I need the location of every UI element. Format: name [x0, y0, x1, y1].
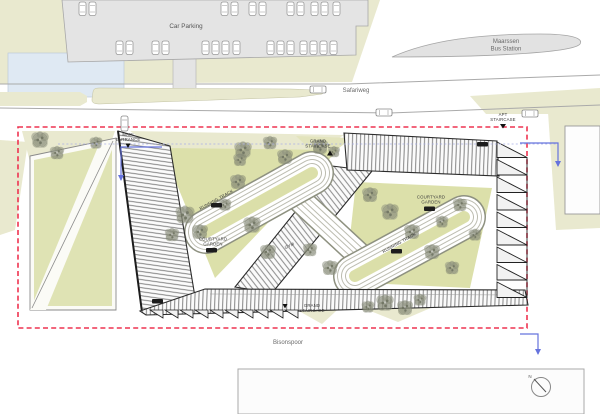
bus-icon — [376, 109, 392, 116]
street-safariweg: Safariweg — [343, 88, 370, 94]
courtyard-right-label-2: GARDEN — [421, 200, 440, 205]
bus-station: Maarssen Bus Station — [392, 34, 581, 57]
street-bisonspoor: Bisonspoor — [273, 340, 303, 346]
road-median-island — [92, 88, 323, 104]
bus-stop-icon — [121, 116, 128, 131]
level-badge — [206, 248, 217, 253]
entrance-label-2: ENTRANCE — [116, 137, 141, 142]
ground-wedge-left — [0, 140, 28, 235]
car-parking-label: Car Parking — [169, 23, 203, 30]
staircase-top-label-2: STAIRCASE — [305, 144, 330, 149]
compass-north-label: N — [528, 374, 531, 379]
level-badge — [424, 207, 435, 212]
building-east-bar — [344, 133, 499, 176]
bus-icon — [310, 86, 326, 93]
ground-island-left — [0, 92, 87, 106]
level-badge — [477, 142, 488, 147]
level-badge — [152, 299, 163, 304]
flow-arrow-south — [520, 334, 538, 354]
bus-station-label-1: Maarssen — [493, 39, 519, 45]
left-block — [30, 138, 116, 310]
courtyard-left-label-2: GARDEN — [203, 242, 222, 247]
staircase-bottom-label-2: STAIRCASE — [299, 308, 324, 313]
neighbor-building-right — [565, 126, 600, 214]
bus-station-label-2: Bus Station — [491, 47, 522, 53]
apt-staircase-label-2: STAIRCASE — [490, 117, 515, 122]
site-plan-canvas: Car Parking Maarssen Bus Station Safariw… — [0, 0, 600, 414]
site-plan-drawing: Car Parking Maarssen Bus Station Safariw… — [0, 0, 600, 414]
level-badge — [391, 249, 402, 254]
bus-icon — [522, 110, 538, 117]
bus-platform — [392, 34, 581, 57]
level-badge — [211, 203, 222, 208]
building-east-sawtooth — [497, 142, 527, 298]
